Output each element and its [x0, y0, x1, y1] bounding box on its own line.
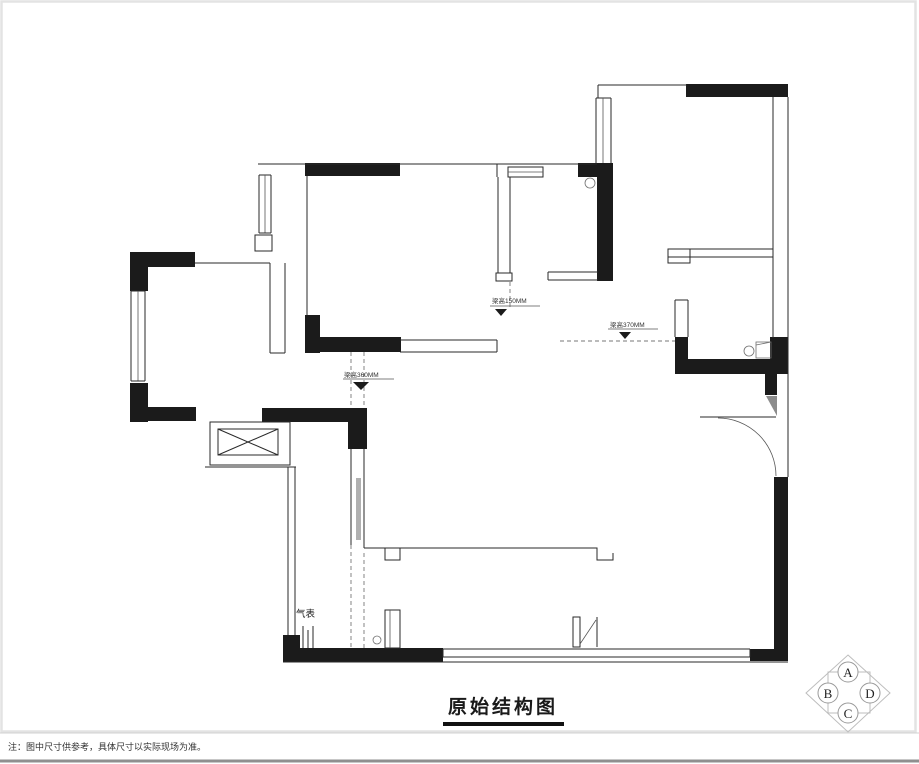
title-underline	[443, 722, 564, 726]
kitchen-fixtures	[303, 478, 597, 648]
drawing-title: 原始结构图	[443, 695, 564, 726]
window-left-bedroom	[131, 291, 145, 381]
window-middle-room-left	[259, 175, 271, 233]
direction-letter-d: D	[865, 686, 874, 701]
beam-marker-triangle	[495, 309, 507, 316]
window-small-room	[508, 167, 543, 177]
small-door-leaf	[573, 617, 597, 647]
beam-annotation-1: 梁高150MM	[490, 296, 540, 316]
page-title: 原始结构图	[448, 695, 558, 718]
drain-icon	[373, 636, 381, 644]
direction-indicator: A B C D	[806, 655, 890, 732]
walls	[130, 84, 788, 662]
window-south-balcony	[443, 649, 750, 657]
beam-annotation-2-text: 梁高370MM	[610, 320, 645, 329]
elevator-shaft	[210, 422, 290, 465]
direction-letter-b: B	[824, 686, 833, 701]
entry-door	[700, 396, 777, 476]
window-top-right-room	[596, 98, 611, 163]
sliding-door-bar	[356, 478, 361, 540]
door-jamb-hatch	[766, 396, 777, 416]
beam-marker-triangle	[353, 382, 369, 390]
gas-meter-pipes	[303, 626, 313, 648]
entry-door-arc	[718, 418, 776, 476]
beam-annotation-2: 梁高370MM	[608, 320, 658, 339]
windows	[131, 98, 750, 657]
beam-annotation-1-text: 梁高150MM	[492, 296, 527, 305]
beam-marker-triangle	[619, 332, 631, 339]
gas-meter-label: 气表	[296, 608, 316, 620]
duct-box	[385, 610, 400, 648]
beam-annotation-3-text: 梁高360MM	[344, 370, 379, 379]
pipe-riser-icon	[585, 178, 595, 188]
floorplan-page: 梁高150MM 梁高370MM 梁高360MM 气表 原始结构图 注：图中尺寸供…	[0, 0, 919, 764]
direction-letter-c: C	[844, 706, 853, 721]
toilet-icon	[744, 342, 771, 358]
floorplan-drawing: 梁高150MM 梁高370MM 梁高360MM 气表 原始结构图 注：图中尺寸供…	[0, 0, 919, 764]
direction-letter-a: A	[843, 665, 853, 680]
footnote-text: 注：图中尺寸供参考，具体尺寸以实际现场为准。	[8, 741, 206, 752]
